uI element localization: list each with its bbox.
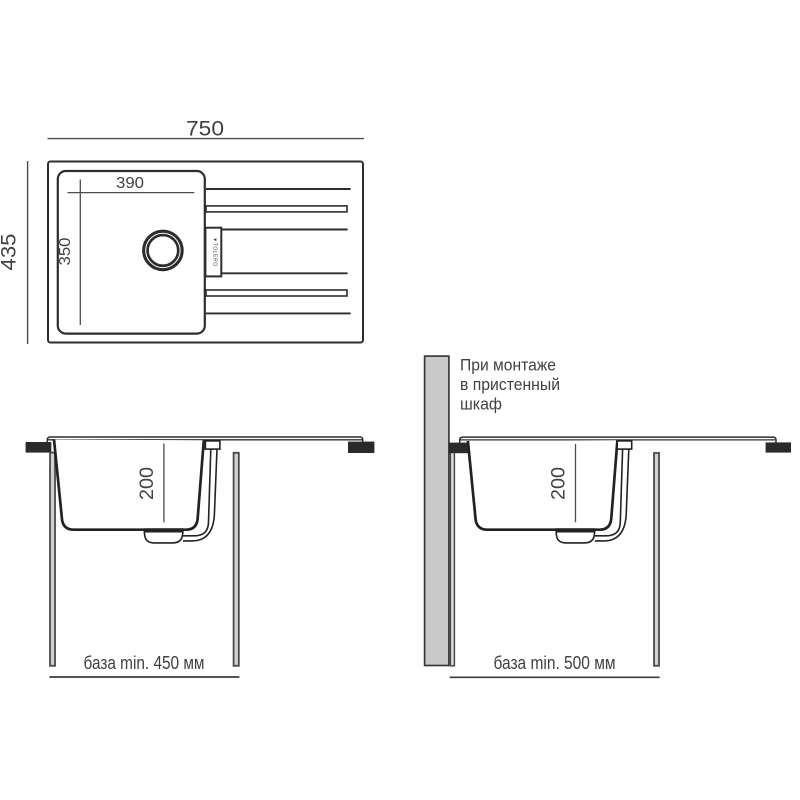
svg-text:▼TOLERO: ▼TOLERO	[212, 237, 218, 267]
svg-text:в пристенный: в пристенный	[460, 375, 560, 394]
svg-text:390: 390	[116, 175, 144, 192]
svg-text:435: 435	[0, 234, 21, 271]
svg-text:200: 200	[549, 467, 570, 500]
svg-text:350: 350	[57, 237, 74, 265]
svg-text:шкаф: шкаф	[460, 395, 502, 414]
svg-text:база min. 500 мм: база min. 500 мм	[494, 653, 616, 673]
svg-text:200: 200	[137, 467, 158, 500]
svg-text:При монтаже: При монтаже	[460, 355, 556, 374]
svg-text:750: 750	[186, 118, 224, 141]
svg-text:база min. 450 мм: база min. 450 мм	[84, 653, 205, 673]
